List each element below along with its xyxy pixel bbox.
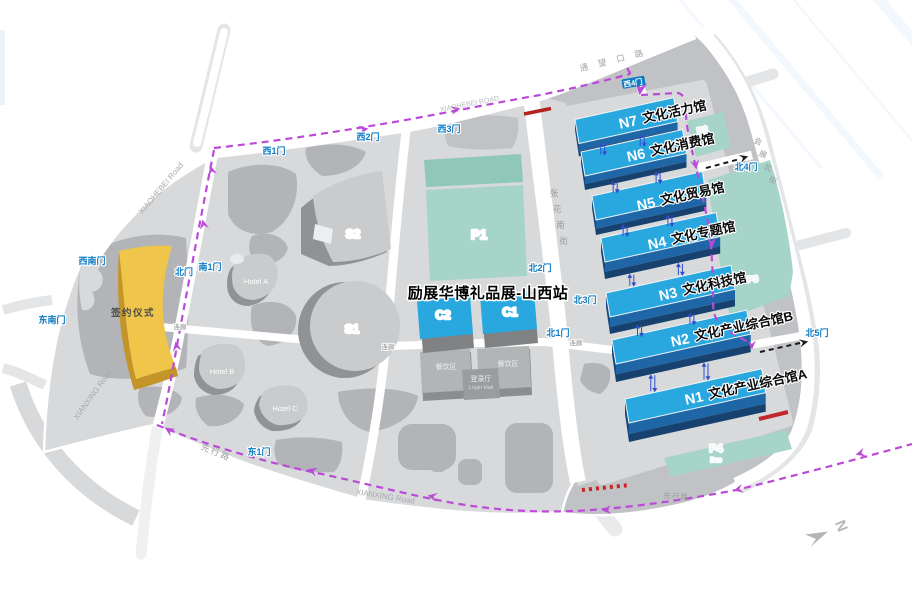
- svg-text:西2门: 西2门: [356, 131, 379, 142]
- svg-text:南: 南: [556, 220, 565, 230]
- svg-text:Login Hall: Login Hall: [469, 385, 493, 391]
- svg-text:S2: S2: [346, 227, 361, 241]
- svg-text:餐饮区: 餐饮区: [436, 362, 457, 371]
- svg-text:C2: C2: [435, 308, 451, 322]
- svg-text:北1门: 北1门: [546, 327, 569, 338]
- svg-text:北门: 北门: [175, 266, 193, 277]
- svg-text:P1: P1: [471, 227, 487, 242]
- svg-text:北2门: 北2门: [528, 262, 551, 273]
- svg-text:先行路: 先行路: [663, 490, 689, 502]
- svg-text:花: 花: [553, 204, 562, 214]
- svg-text:北5门: 北5门: [805, 327, 828, 338]
- svg-text:西1门: 西1门: [262, 145, 285, 156]
- svg-text:C1: C1: [502, 305, 518, 319]
- svg-text:连廊: 连廊: [382, 342, 396, 351]
- svg-text:餐饮区: 餐饮区: [498, 359, 519, 368]
- svg-text:Hotel A: Hotel A: [244, 277, 268, 286]
- svg-text:励展华博礼品展-山西站: 励展华博礼品展-山西站: [408, 284, 569, 302]
- svg-text:张: 张: [550, 188, 559, 198]
- svg-text:北3门: 北3门: [573, 294, 596, 305]
- svg-text:签约仪式: 签约仪式: [110, 307, 155, 319]
- svg-text:西3门: 西3门: [437, 123, 460, 134]
- svg-text:P4: P4: [709, 443, 723, 455]
- svg-text:Hotel C: Hotel C: [272, 404, 298, 413]
- svg-text:Bus: Bus: [710, 457, 722, 464]
- svg-text:西南门: 西南门: [78, 255, 105, 266]
- svg-text:P3: P3: [747, 274, 759, 285]
- svg-text:南1门: 南1门: [198, 261, 221, 272]
- svg-text:街: 街: [559, 236, 568, 246]
- svg-text:东南门: 东南门: [38, 314, 65, 325]
- svg-text:S1: S1: [345, 322, 360, 336]
- svg-text:连廊: 连廊: [570, 338, 584, 347]
- svg-text:连廊: 连廊: [174, 322, 188, 331]
- svg-text:东1门: 东1门: [247, 446, 270, 457]
- svg-text:登录厅: 登录厅: [471, 374, 492, 383]
- svg-text:北4门: 北4门: [734, 161, 757, 172]
- svg-text:Hotel B: Hotel B: [210, 367, 235, 376]
